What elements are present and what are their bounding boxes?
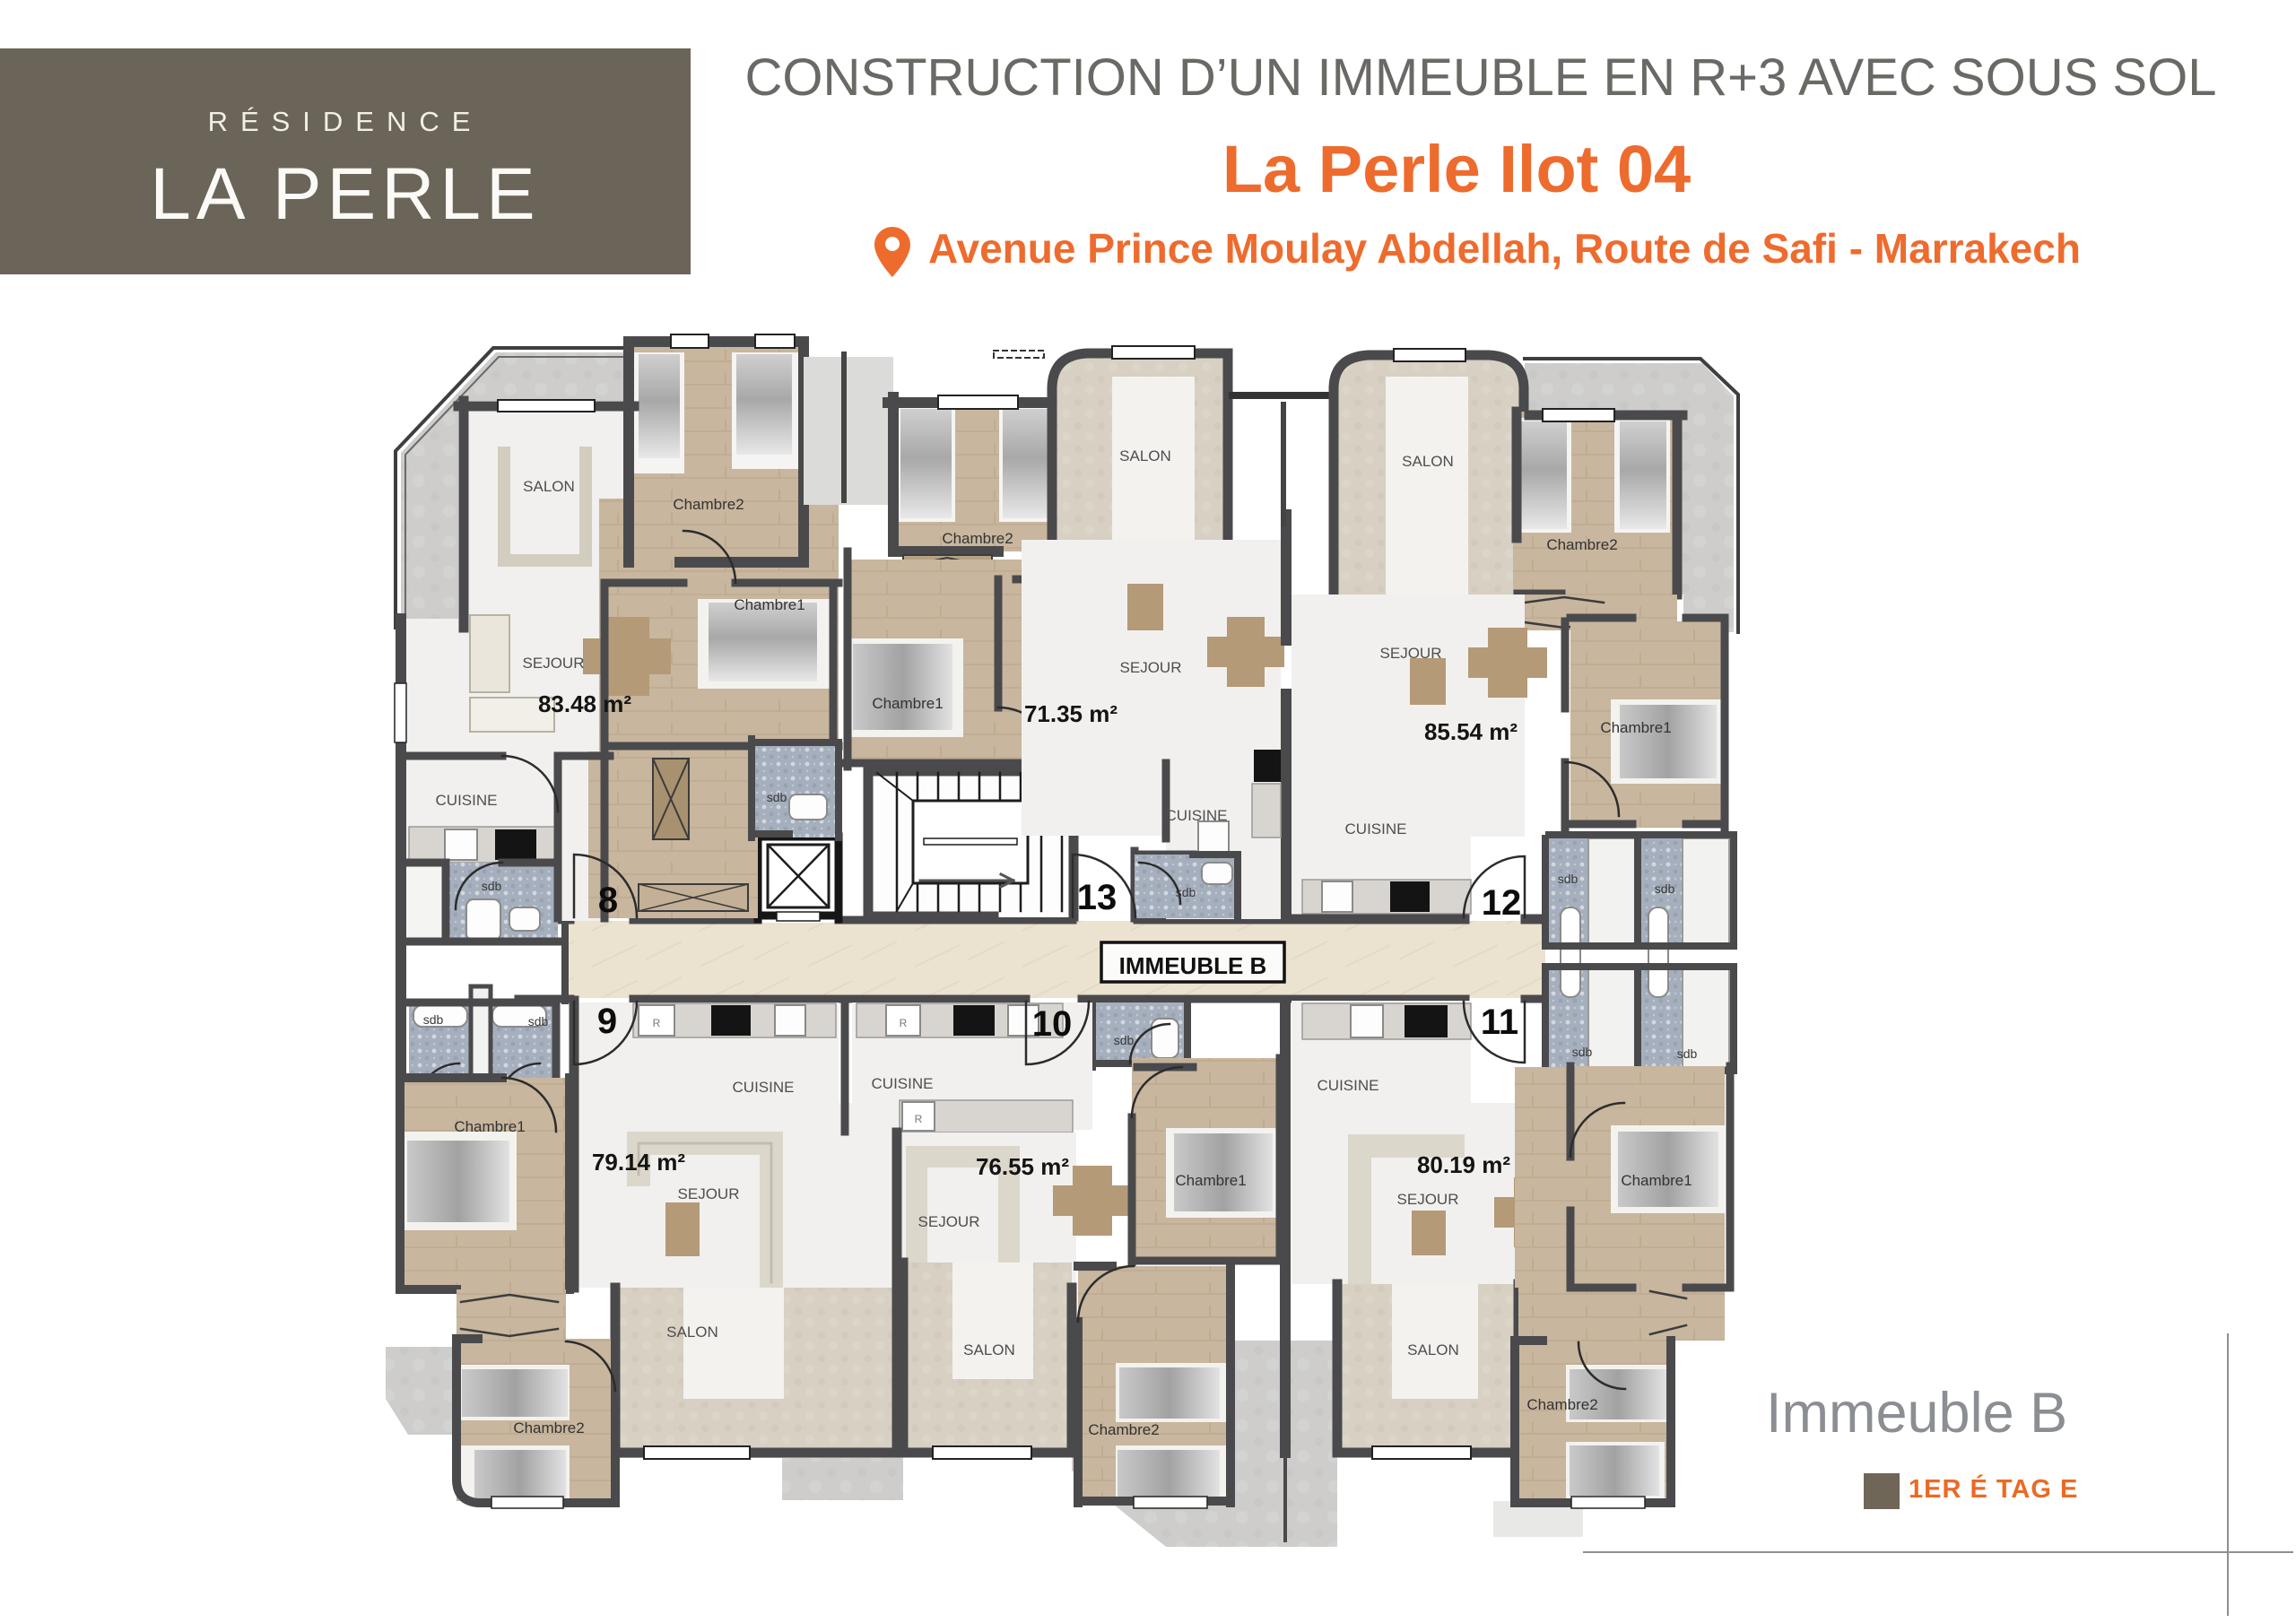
svg-text:SEJOUR: SEJOUR [523,655,585,672]
svg-text:80.19 m²: 80.19 m² [1417,1151,1510,1178]
svg-text:sdb: sdb [1558,872,1578,886]
svg-text:Chambre2: Chambre2 [673,496,744,513]
svg-text:SEJOUR: SEJOUR [918,1213,980,1230]
svg-text:R: R [900,1017,908,1029]
svg-text:sdb: sdb [1176,885,1196,899]
svg-text:79.14 m²: 79.14 m² [592,1149,685,1176]
svg-text:SEJOUR: SEJOUR [1397,1191,1459,1208]
svg-text:76.55 m²: 76.55 m² [976,1153,1069,1180]
svg-text:R: R [653,1017,661,1029]
svg-text:sdb: sdb [482,879,502,893]
svg-text:sdb: sdb [1572,1045,1593,1059]
svg-text:Chambre1: Chambre1 [1621,1172,1692,1189]
svg-text:CUISINE: CUISINE [436,792,498,809]
svg-text:SALON: SALON [1119,447,1171,464]
svg-text:85.54 m²: 85.54 m² [1424,718,1518,745]
svg-text:SALON: SALON [1402,453,1454,470]
svg-text:CUISINE: CUISINE [1345,820,1407,838]
svg-text:12: 12 [1482,883,1522,923]
svg-text:9: 9 [597,1002,617,1041]
svg-text:Chambre2: Chambre2 [1546,536,1617,553]
svg-text:8: 8 [598,881,618,920]
svg-text:Chambre1: Chambre1 [1600,719,1671,736]
svg-text:sdb: sdb [767,790,787,804]
svg-text:Chambre1: Chambre1 [872,695,943,712]
svg-text:Chambre2: Chambre2 [1526,1396,1597,1413]
svg-text:CUISINE: CUISINE [1318,1077,1379,1094]
svg-text:10: 10 [1032,1004,1073,1044]
svg-text:Chambre1: Chambre1 [1175,1172,1246,1189]
svg-text:SALON: SALON [1407,1341,1459,1358]
svg-text:CUISINE: CUISINE [733,1079,795,1096]
svg-text:11: 11 [1481,1002,1518,1042]
svg-text:Chambre2: Chambre2 [1088,1421,1159,1438]
svg-text:83.48 m²: 83.48 m² [538,690,631,717]
svg-text:13: 13 [1077,878,1118,917]
svg-text:sdb: sdb [1677,1046,1698,1061]
svg-text:SALON: SALON [666,1324,718,1341]
svg-text:CUISINE: CUISINE [872,1075,934,1092]
svg-text:SEJOUR: SEJOUR [678,1185,740,1202]
svg-text:SEJOUR: SEJOUR [1120,659,1182,676]
svg-text:CUISINE: CUISINE [1166,807,1228,824]
svg-text:sdb: sdb [423,1012,444,1027]
svg-text:sdb: sdb [1655,881,1675,896]
svg-text:Chambre2: Chambre2 [942,530,1013,547]
svg-text:R: R [915,1113,923,1125]
svg-text:Chambre2: Chambre2 [513,1419,584,1436]
svg-text:SALON: SALON [523,478,575,495]
svg-text:Chambre1: Chambre1 [734,596,804,613]
svg-text:SALON: SALON [963,1341,1015,1358]
svg-text:sdb: sdb [1114,1033,1135,1047]
svg-text:Chambre1: Chambre1 [454,1118,525,1135]
svg-text:71.35 m²: 71.35 m² [1024,700,1118,727]
svg-text:sdb: sdb [528,1014,549,1028]
svg-text:IMMEUBLE B: IMMEUBLE B [1119,952,1267,979]
svg-text:SEJOUR: SEJOUR [1380,645,1442,662]
